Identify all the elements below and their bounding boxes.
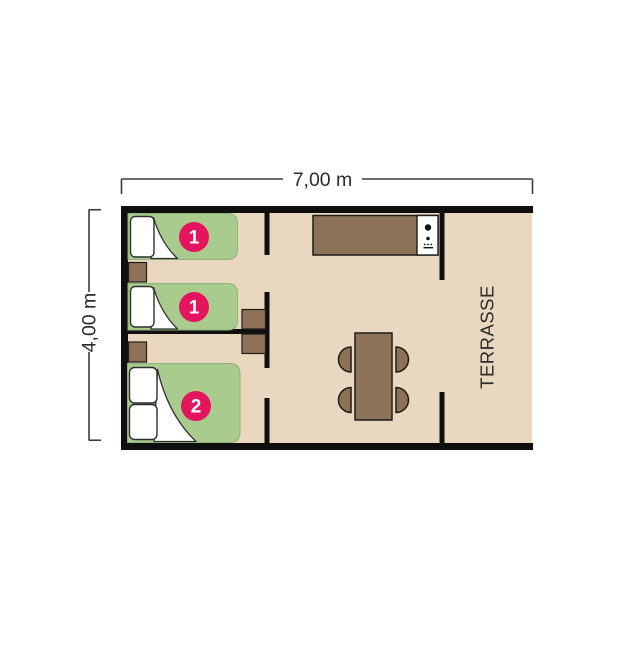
burner-small-icon xyxy=(426,237,430,241)
exterior-wall-left xyxy=(121,206,128,450)
floor-plan-drawing: 7,00 m 4,00 m xyxy=(0,0,617,654)
pillow xyxy=(131,287,155,328)
pillow xyxy=(130,368,158,404)
single-bed-2: 1 xyxy=(128,284,238,331)
nightstand-2 xyxy=(129,342,147,362)
wardrobe-upper xyxy=(242,310,266,330)
vent-dot-icon xyxy=(424,244,426,246)
exterior-wall-bottom xyxy=(121,443,533,450)
partition-wall-lower xyxy=(265,398,270,443)
sleeps-count: 1 xyxy=(189,298,200,319)
burner-large-icon xyxy=(425,224,431,230)
terrace-wall-lower xyxy=(440,392,445,443)
terrace-label: TERRASSE xyxy=(476,285,497,389)
terrace-wall-upper xyxy=(440,213,445,280)
sleeps-count: 1 xyxy=(189,228,200,249)
pillow xyxy=(131,217,155,258)
dining-table xyxy=(355,333,392,420)
floor-plan-page: 7,00 m 4,00 m xyxy=(0,0,617,654)
exterior-wall-top xyxy=(121,206,533,213)
stove-unit xyxy=(417,216,438,256)
dimension-height: 4,00 m xyxy=(78,210,101,441)
kitchen-counter xyxy=(313,216,438,256)
height-label: 4,00 m xyxy=(78,293,100,353)
vent-line-icon xyxy=(424,247,434,248)
partition-wall-upper xyxy=(265,213,270,255)
dimension-width: 7,00 m xyxy=(122,169,533,194)
sleeps-count: 2 xyxy=(191,397,202,418)
single-bed-1: 1 xyxy=(128,214,238,260)
vent-dot-icon xyxy=(430,244,432,246)
pillow xyxy=(130,405,158,440)
width-label: 7,00 m xyxy=(293,169,353,191)
vent-dot-icon xyxy=(427,244,429,246)
wardrobe-lower xyxy=(242,334,266,354)
nightstand-1 xyxy=(129,263,147,283)
double-bed: 2 xyxy=(128,364,241,443)
